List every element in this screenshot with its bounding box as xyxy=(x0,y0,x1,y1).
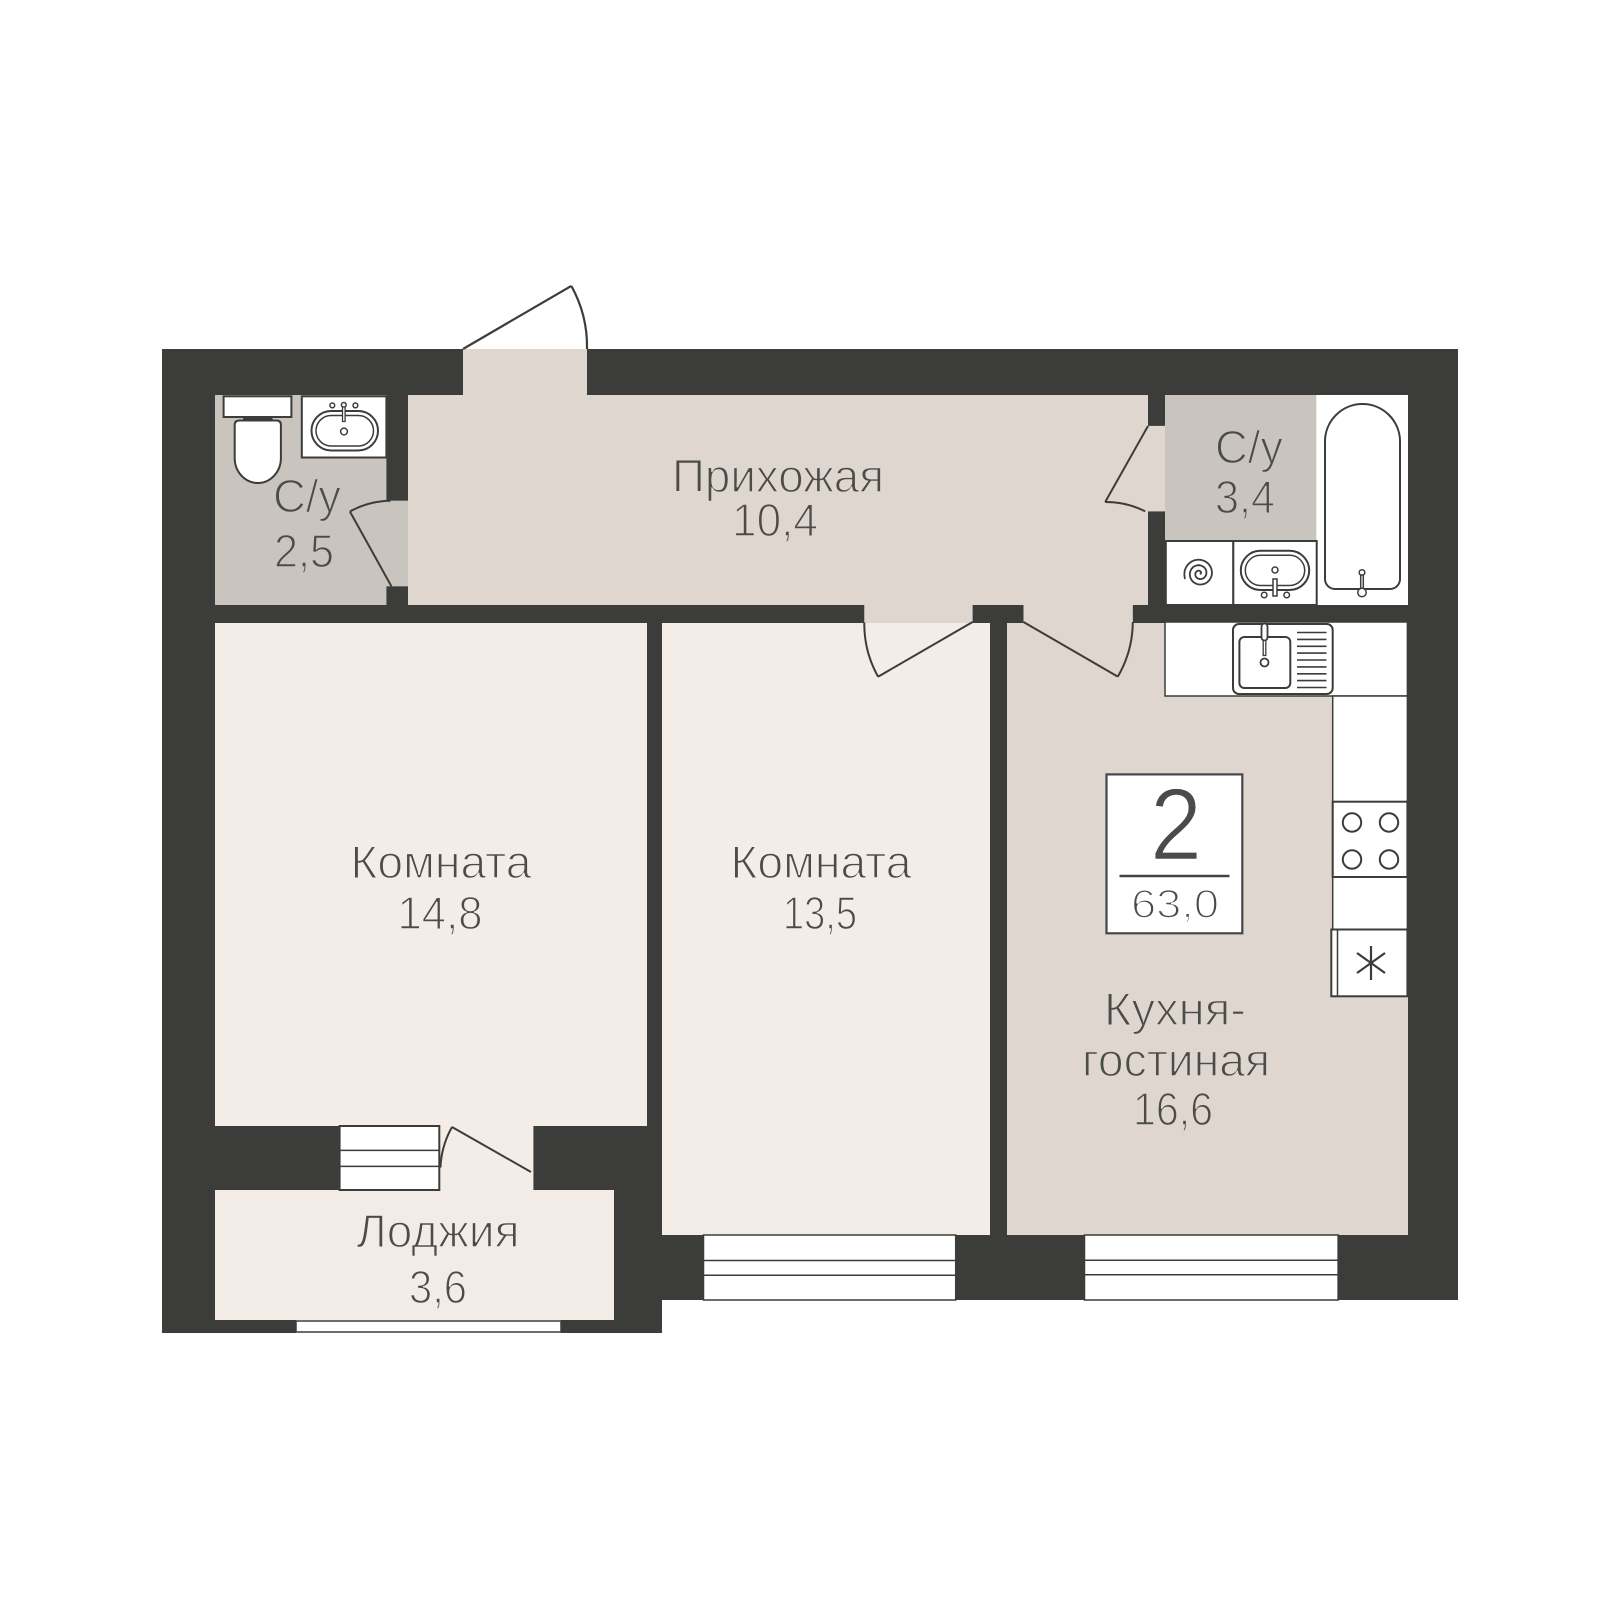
svg-text:14,8: 14,8 xyxy=(398,887,483,939)
svg-text:Лоджия: Лоджия xyxy=(357,1205,520,1257)
svg-text:С/у: С/у xyxy=(1215,421,1283,473)
svg-text:Комната: Комната xyxy=(731,836,912,888)
svg-text:63,0: 63,0 xyxy=(1131,883,1219,927)
svg-text:3,4: 3,4 xyxy=(1215,471,1275,523)
svg-text:2: 2 xyxy=(1150,768,1202,882)
svg-text:16,6: 16,6 xyxy=(1133,1083,1213,1135)
svg-text:13,5: 13,5 xyxy=(783,887,857,939)
svg-text:2,5: 2,5 xyxy=(274,525,334,577)
svg-text:Кухня-: Кухня- xyxy=(1104,983,1246,1035)
svg-text:Комната: Комната xyxy=(351,836,532,888)
svg-text:10,4: 10,4 xyxy=(732,494,818,546)
svg-text:гостиная: гостиная xyxy=(1082,1034,1270,1086)
svg-text:С/у: С/у xyxy=(273,470,341,522)
svg-text:3,6: 3,6 xyxy=(409,1261,467,1313)
